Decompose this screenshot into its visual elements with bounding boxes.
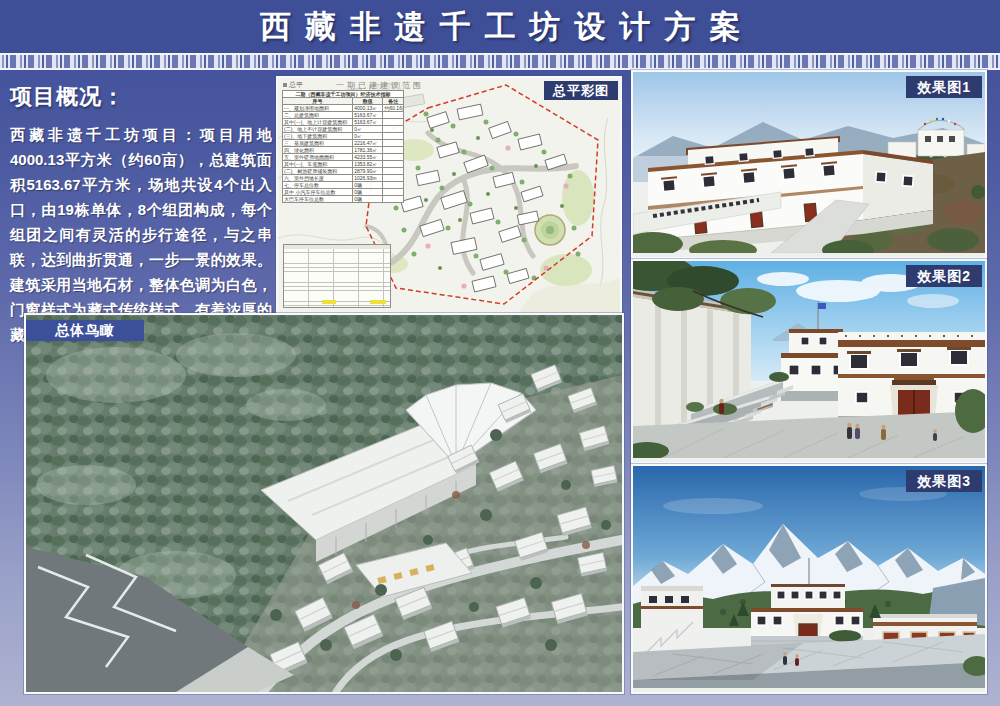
table-cell <box>383 126 404 133</box>
table-title: 二期（西藏非遗千工坊项目）经济技术指标 <box>283 91 404 98</box>
table-cell: 0辆 <box>353 182 383 189</box>
table-row: 四、绿化面积1781.36㎡ <box>283 147 404 154</box>
table-cell: 1026.93m <box>353 175 383 182</box>
table-row: 其中(一)、车道面积1353.82㎡ <box>283 161 404 168</box>
aerial-view-image <box>26 315 622 692</box>
table-cell <box>383 140 404 147</box>
table-cell: 二、总建筑面积 <box>283 112 353 119</box>
title-bar: 西藏非遗千工坊设计方案 <box>0 0 1000 53</box>
table-cell <box>383 119 404 126</box>
table-cell: 其中 小汽车停车位总数 <box>283 189 353 196</box>
render-3-image <box>633 466 985 688</box>
aerial-view-panel: 总体鸟瞰 <box>24 313 624 694</box>
table-cell: 数值 <box>353 98 383 105</box>
render-1-panel: 效果图1 <box>631 70 987 259</box>
table-cell: 序号 <box>283 98 353 105</box>
table-cell: 0辆 <box>353 189 383 196</box>
table-cell: 约60.16亩 <box>383 105 404 112</box>
table-cell: 七、停车总位数 <box>283 182 353 189</box>
render-3-panel: 效果图3 <box>631 464 987 694</box>
presentation-board: 西藏非遗千工坊设计方案 项目概况： 西藏非遗千工坊项目：项目用地4000.13平… <box>0 0 1000 706</box>
table-row: 二期（西藏非遗千工坊项目）经济技术指标 <box>283 91 404 98</box>
table-cell: 一、规划净用地面积 <box>283 105 353 112</box>
building-index-table <box>283 244 391 308</box>
table-cell <box>383 112 404 119</box>
table-row: 大巴车停车位总数0辆 <box>283 196 404 203</box>
map-legend-label: 总平 <box>289 81 303 88</box>
legend-square-icon <box>283 83 287 87</box>
table-cell: 4233.55㎡ <box>353 154 383 161</box>
table-row: 三、基底建筑面积2216.47㎡ <box>283 140 404 147</box>
indicator-table: 二期（西藏非遗千工坊项目）经济技术指标序号数值备注一、规划净用地面积4000.1… <box>282 90 404 203</box>
table-cell: 六、室外挡墙长度 <box>283 175 353 182</box>
render-2-image <box>633 261 985 458</box>
table-cell <box>383 154 404 161</box>
table-cell: 其中(一)、车道面积 <box>283 161 353 168</box>
table-row: (二)、地上不计容建筑面积0㎡ <box>283 126 404 133</box>
table-cell: (二)、地上不计容建筑面积 <box>283 126 353 133</box>
table-cell: 0辆 <box>353 196 383 203</box>
render-3-label: 效果图3 <box>906 470 982 492</box>
render-2-panel: 效果图2 <box>631 259 987 464</box>
site-plan-label: 总平彩图 <box>544 81 618 100</box>
table-cell: 4000.13㎡ <box>353 105 383 112</box>
render-2-label: 效果图2 <box>906 265 982 287</box>
table-row: 七、停车总位数0辆 <box>283 182 404 189</box>
table-cell: 1353.82㎡ <box>353 161 383 168</box>
site-plan-panel: . 总平 一期已建建设范围 二期（西藏非遗千工坊项目）经济技术指标序号数值备注一… <box>276 76 622 315</box>
table-cell: 四、绿化面积 <box>283 147 353 154</box>
table-cell <box>383 196 404 203</box>
table-cell <box>383 182 404 189</box>
table-cell: 五、室外硬质地面面积 <box>283 154 353 161</box>
render-1-image <box>633 72 985 253</box>
table-cell: (二)、树池硬质铺装面积 <box>283 168 353 175</box>
table-cell: 5163.67㎡ <box>353 119 383 126</box>
table-cell <box>383 161 404 168</box>
table-cell: 大巴车停车位总数 <box>283 196 353 203</box>
render-1-label: 效果图1 <box>906 76 982 98</box>
aerial-view-label: 总体鸟瞰 <box>26 320 144 341</box>
table-cell: 2879.90㎡ <box>353 168 383 175</box>
table-cell: 2216.47㎡ <box>353 140 383 147</box>
table-row: 序号数值备注 <box>283 98 404 105</box>
table-row: 六、室外挡墙长度1026.93m <box>283 175 404 182</box>
table-cell: 5163.67㎡ <box>353 112 383 119</box>
poster-title: 西藏非遗千工坊设计方案 <box>0 0 1000 53</box>
table-cell: 1781.36㎡ <box>353 147 383 154</box>
table-cell <box>383 147 404 154</box>
table-cell <box>383 189 404 196</box>
table-row: (三)、地下建筑面积0㎡ <box>283 133 404 140</box>
table-cell: (三)、地下建筑面积 <box>283 133 353 140</box>
table-row: 一、规划净用地面积4000.13㎡约60.16亩 <box>283 105 404 112</box>
map-legend: 总平 <box>283 80 303 90</box>
table-cell: 0㎡ <box>353 126 383 133</box>
table-cell <box>383 168 404 175</box>
project-overview: 项目概况： 西藏非遗千工坊项目：项目用地4000.13平方米（约60亩），总建筑… <box>10 82 272 347</box>
tibetan-border-pattern <box>0 53 1000 70</box>
table-row: (二)、树池硬质铺装面积2879.90㎡ <box>283 168 404 175</box>
table-cell <box>383 133 404 140</box>
overview-heading: 项目概况： <box>10 82 272 112</box>
table-cell: 其中(一)、地上计容建筑面积 <box>283 119 353 126</box>
table-row: 二、总建筑面积5163.67㎡ <box>283 112 404 119</box>
table-cell: 0㎡ <box>353 133 383 140</box>
table-row: 其中(一)、地上计容建筑面积5163.67㎡ <box>283 119 404 126</box>
table-cell: 备注 <box>383 98 404 105</box>
table-cell: 三、基底建筑面积 <box>283 140 353 147</box>
table-row: 五、室外硬质地面面积4233.55㎡ <box>283 154 404 161</box>
table-row: 其中 小汽车停车位总数0辆 <box>283 189 404 196</box>
table-cell <box>383 175 404 182</box>
